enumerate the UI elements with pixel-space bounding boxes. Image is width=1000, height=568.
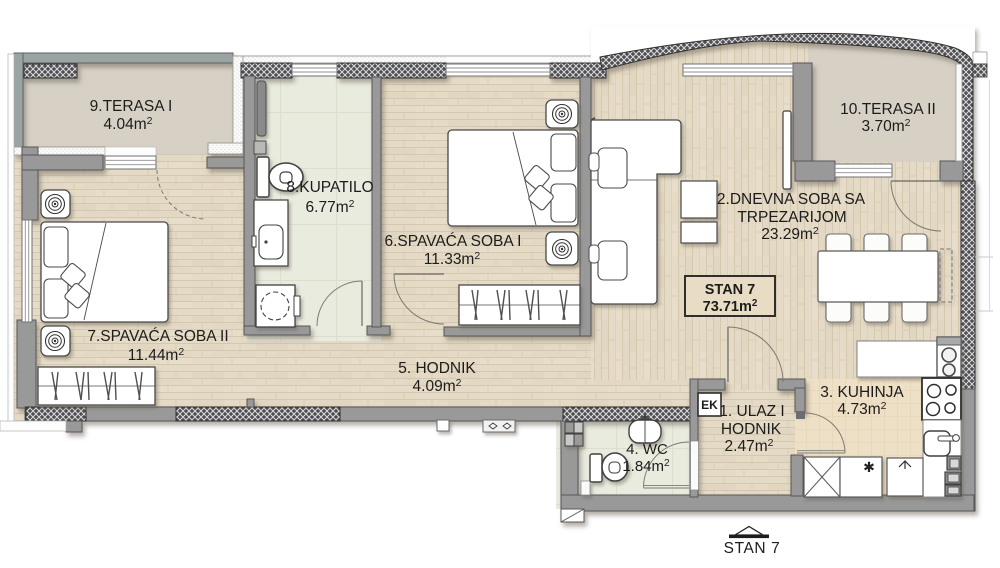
svg-text:4.04m2: 4.04m2	[104, 115, 153, 133]
svg-text:2.47m2: 2.47m2	[725, 437, 774, 455]
svg-text:9.TERASA I: 9.TERASA I	[90, 98, 173, 115]
svg-text:✱: ✱	[863, 459, 875, 475]
svg-text:1.84m2: 1.84m2	[622, 458, 670, 475]
svg-text:STAN 7: STAN 7	[724, 540, 781, 557]
svg-text:STAN 7: STAN 7	[705, 282, 756, 298]
svg-text:11.33m2: 11.33m2	[424, 250, 481, 268]
svg-text:3. KUHINJA: 3. KUHINJA	[820, 384, 904, 401]
svg-text:5. HODNIK: 5. HODNIK	[398, 360, 476, 377]
svg-text:6.77m2: 6.77m2	[306, 198, 355, 216]
svg-text:11.44m2: 11.44m2	[128, 346, 185, 364]
svg-text:2.DNEVNA SOBA SA: 2.DNEVNA SOBA SA	[717, 191, 866, 208]
svg-text:HODNIK: HODNIK	[721, 421, 782, 438]
svg-text:3.70m2: 3.70m2	[862, 117, 911, 135]
svg-text:7.SPAVAĆA SOBA II: 7.SPAVAĆA SOBA II	[87, 328, 228, 345]
svg-text:10.TERASA II: 10.TERASA II	[840, 101, 936, 118]
svg-text:4. WC: 4. WC	[626, 441, 668, 458]
svg-text:73.71m2: 73.71m2	[703, 298, 758, 315]
svg-text:1. ULAZ I: 1. ULAZ I	[719, 403, 784, 420]
svg-text:4.09m2: 4.09m2	[413, 377, 462, 395]
svg-text:TRPEZARIJOM: TRPEZARIJOM	[737, 209, 846, 226]
svg-text:6.SPAVAĆA SOBA I: 6.SPAVAĆA SOBA I	[385, 233, 522, 250]
svg-text:8.KUPATILO: 8.KUPATILO	[286, 179, 373, 196]
svg-text:23.29m2: 23.29m2	[761, 225, 819, 243]
svg-text:EK: EK	[701, 398, 718, 412]
svg-text:4.73m2: 4.73m2	[838, 400, 887, 418]
